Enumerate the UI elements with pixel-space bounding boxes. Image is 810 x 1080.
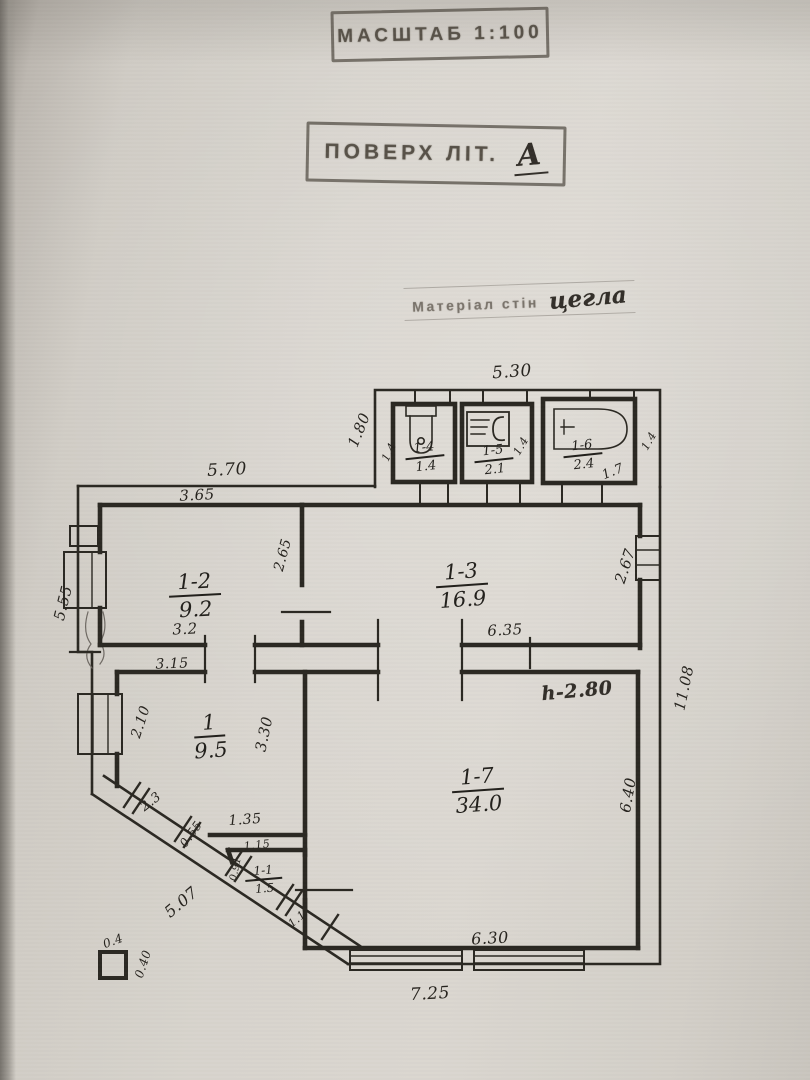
room-label-1-2: 1-2 9.2 [168,569,222,623]
room-number: 1 [193,710,226,738]
boiler-icon [467,412,509,446]
legend-pier-square [100,952,126,978]
dim-room12-top: 3.65 [179,485,215,505]
room-label-1-7: 1-7 34.0 [450,764,505,819]
room-area: 2.1 [484,460,506,478]
dim-bottom: 7.25 [410,983,451,1005]
dim-room12-bottom: 3.2 [172,619,198,638]
room-label-1-6: 1-6 2.4 [562,437,604,474]
floor-plan-drawing [0,0,810,1080]
dim-room13-bottom: 6.35 [487,620,523,640]
room-number: 1-5 [473,442,514,463]
dim-top: 5.70 [207,459,248,481]
room-label-1-3: 1-3 16.9 [434,559,489,614]
room-label-1-4: 1-4 1.4 [404,439,446,476]
interior-walls [100,399,640,948]
dim-room1-bottom: 1.35 [228,811,262,829]
dim-wing-top: 5.30 [491,361,532,384]
room-area: 1.5 [255,880,275,897]
room-label-1: 1 9.5 [192,710,229,763]
room-area: 2.4 [573,455,595,473]
room-number: 1-6 [562,437,603,458]
dim-room17-bottom: 6.30 [471,928,510,949]
scanned-floor-plan-page: МАСШТАБ 1:100 ПОВЕРХ ЛІТ. А Матеріал сті… [0,0,810,1080]
dim-room1-top: 3.15 [155,655,189,672]
room-number: 1-1 [244,863,283,882]
outer-walls [78,390,660,964]
room-area: 1.4 [415,457,437,475]
room-area: 34.0 [455,790,503,818]
room-label-1-5: 1-5 2.1 [473,442,515,479]
room-area: 16.9 [439,585,487,613]
room-number: 1-4 [404,439,445,460]
windows [64,526,660,970]
room-label-1-1: 1-1 1.5 [244,863,284,898]
room-number: 1-2 [168,569,221,598]
room-number: 1-3 [434,559,488,589]
room-area: 9.5 [193,736,228,763]
dim-room11-top: 1.15 [243,837,271,853]
room-number: 1-7 [450,764,504,794]
